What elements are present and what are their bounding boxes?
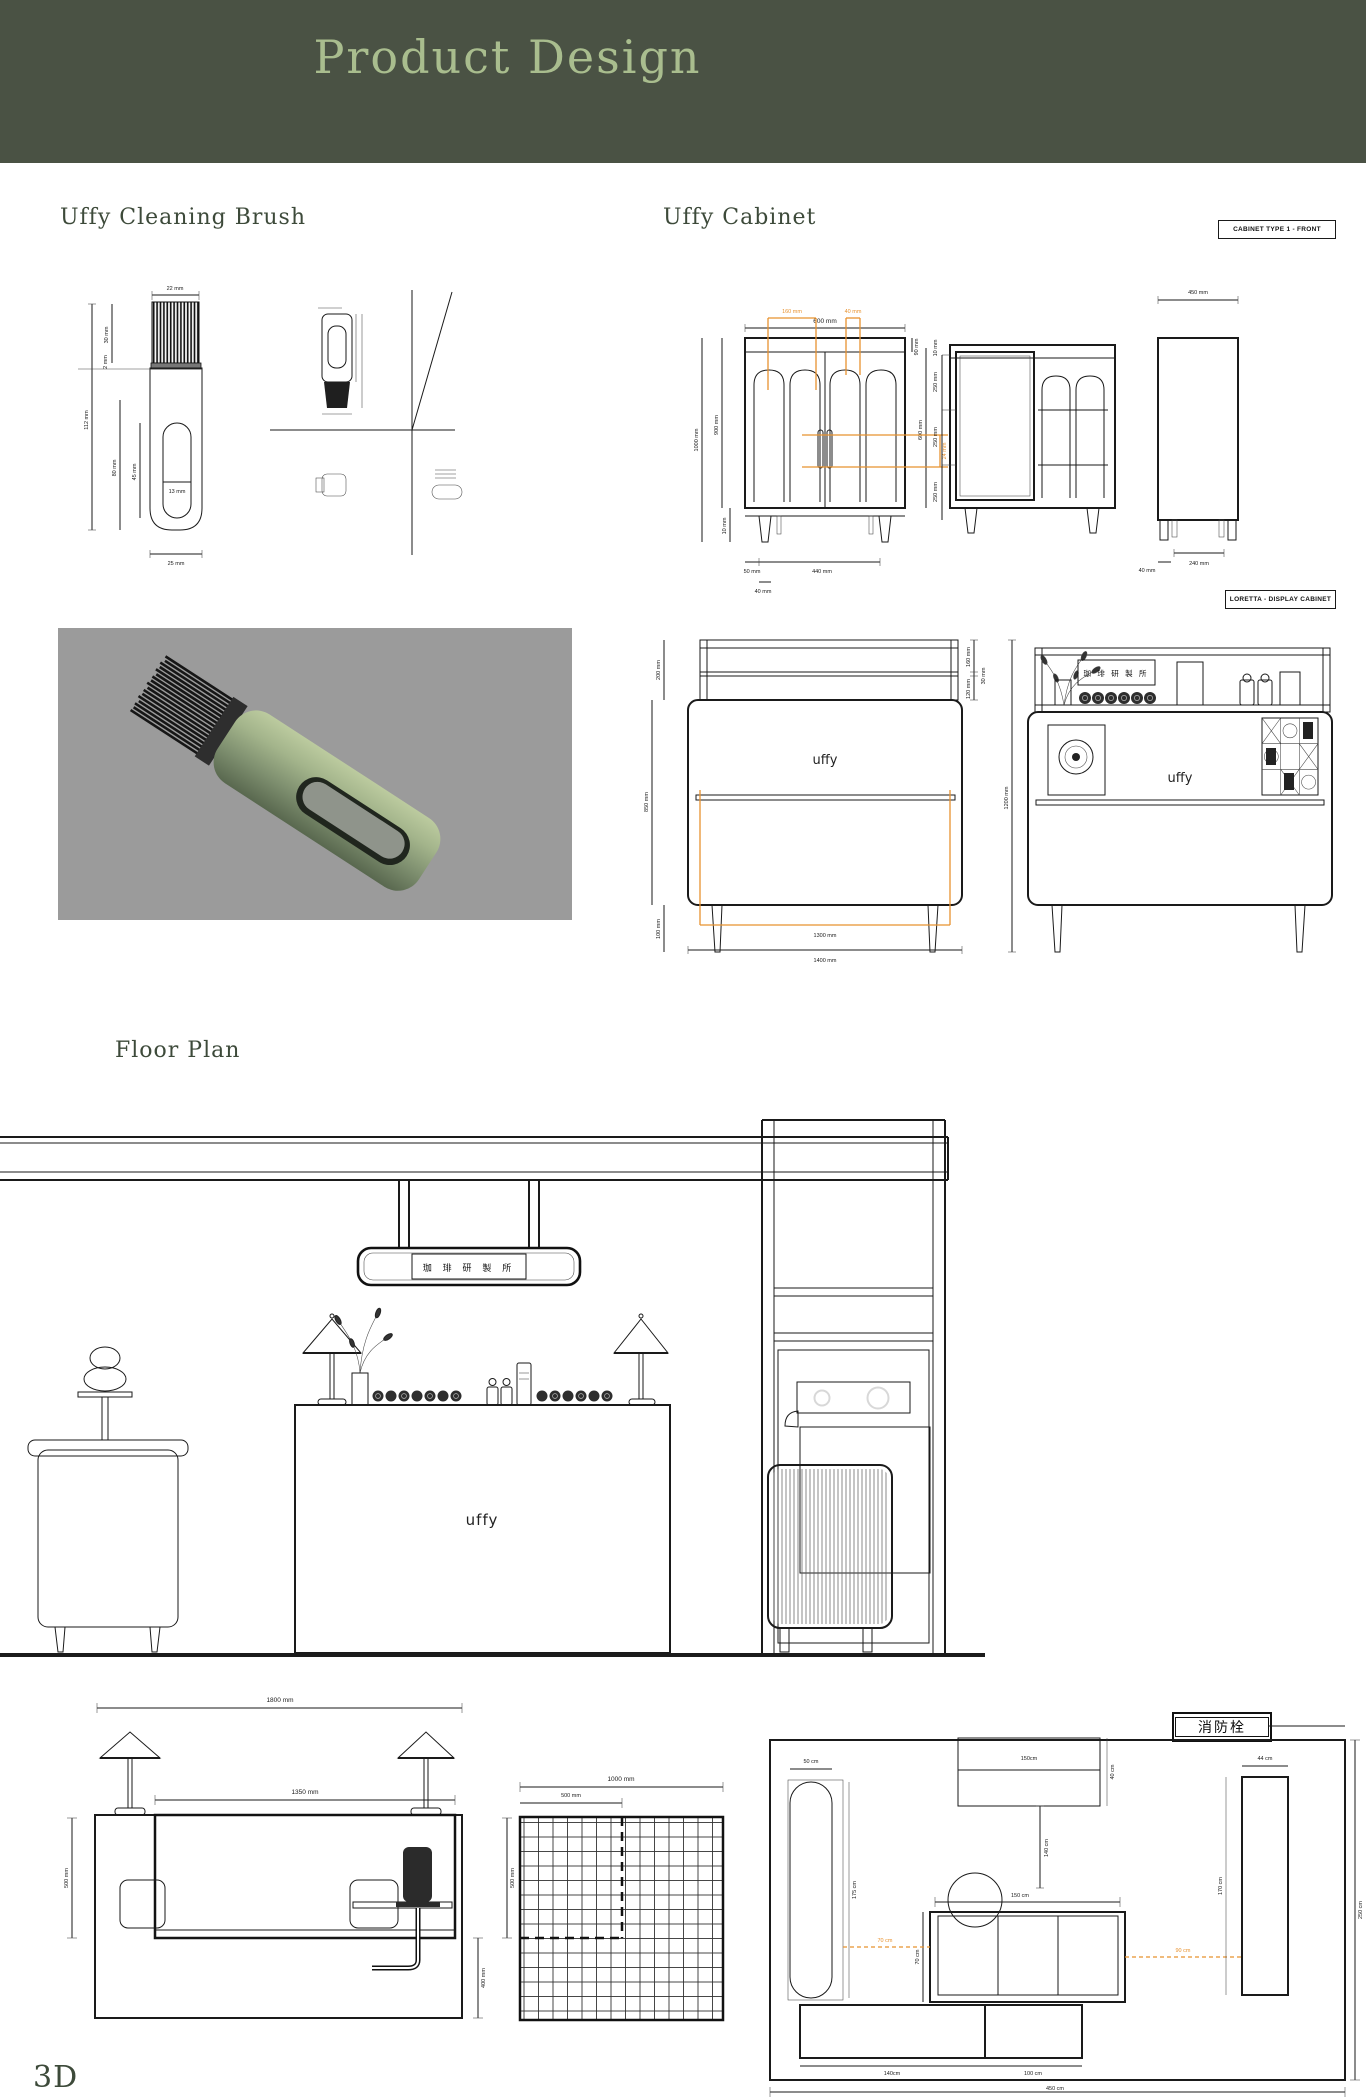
low-units: 140cm 100 cm xyxy=(800,2005,1082,2077)
dim-label: 100 mm xyxy=(656,919,662,939)
ceiling-beam xyxy=(0,1137,948,1180)
counter-plan: 150 cm 70 cm xyxy=(915,1893,1125,2002)
cabinet-section-title: Uffy Cabinet xyxy=(663,205,816,230)
dim-label: 250 mm xyxy=(933,427,939,447)
vase xyxy=(352,1373,368,1405)
tag-card xyxy=(501,1387,512,1405)
tag-card xyxy=(1240,680,1254,705)
dim-label: 44 cm xyxy=(1258,1756,1273,1762)
dim-label: 10 mm xyxy=(933,339,939,356)
dim-label: 1000 mm xyxy=(694,428,700,451)
clearance-dimensions: 70 cm 90 cm xyxy=(843,1938,1242,1957)
dim-label: 25 mm xyxy=(168,561,185,567)
dim-label: 40 mm xyxy=(845,309,862,315)
brush-section-title: Uffy Cleaning Brush xyxy=(60,205,306,230)
dim-label: 2 mm xyxy=(103,355,109,369)
bottle xyxy=(517,1363,531,1405)
counter-props xyxy=(303,1308,668,1405)
dim-label: 175 cm xyxy=(852,1881,858,1899)
dim-label: 30 mm xyxy=(981,667,987,684)
pleated-lamp xyxy=(398,1732,454,1815)
side-table xyxy=(28,1347,188,1652)
pleated-lamp xyxy=(614,1319,668,1353)
dim-label: 450 mm xyxy=(1188,290,1208,296)
dim-label: 400 mm xyxy=(481,1968,487,1988)
brand-logo: uffy xyxy=(1168,771,1193,786)
counter-opening xyxy=(350,1880,398,1928)
dim-label: 1200 mm xyxy=(1004,786,1010,809)
dim-label: 170 cm xyxy=(1218,1877,1224,1895)
counter-elevation-drawing: 1800 mm 1350 mm 500 mm 500 mm 400 mm xyxy=(55,1690,525,2035)
appliance-nook xyxy=(768,1382,930,1652)
display-cabinet-styled: 珈 琲 研 製 所 uffy xyxy=(1028,648,1332,952)
booth-elevation: 珈 琲 研 製 所 uffy xyxy=(0,1115,1000,1665)
display-card xyxy=(1177,662,1203,705)
dim-label: 10 mm xyxy=(722,517,728,534)
cabinet-side-view: 450 mm 240 mm 40 mm xyxy=(1139,290,1238,574)
tag-card xyxy=(487,1387,498,1405)
dim-label: 250 mm xyxy=(933,482,939,502)
dim-label: 160 mm xyxy=(966,647,972,667)
brush-3d-model xyxy=(58,628,572,920)
dim-label: 250 mm xyxy=(933,372,939,392)
display-cabinet-front: uffy 1300 mm 1400 mm 200 mm 850 mm 100 m… xyxy=(644,640,1016,964)
cabinet-front-view xyxy=(745,338,905,542)
dim-label: 40 mm xyxy=(755,589,772,595)
dim-label: 80 mm xyxy=(112,459,118,476)
dim-label: 1350 mm xyxy=(291,1789,318,1796)
dim-label: 240 mm xyxy=(1189,561,1209,567)
brush-side-view xyxy=(318,308,362,414)
tag-card xyxy=(1258,680,1272,705)
room-floor-plan: 50 cm 175 cm 150cm 40 cm 140 cm 150 cm 7… xyxy=(755,1700,1366,2098)
dim-label: 112 mm xyxy=(84,410,90,430)
dim-label: 1000 mm xyxy=(607,1776,634,1783)
hanging-sign: 珈 琲 研 製 所 xyxy=(358,1180,580,1285)
dim-label: 450 cm xyxy=(1046,2086,1064,2092)
dim-label: 250 cm xyxy=(1358,1901,1364,1919)
dim-label: 500 mm xyxy=(561,1793,581,1799)
tiled-counter xyxy=(95,1815,462,2018)
dim-label: 70 cm xyxy=(915,1949,921,1964)
dim-label: 1400 mm xyxy=(814,958,837,964)
dim-label: 1800 mm xyxy=(266,1697,293,1704)
dim-label: 600 mm xyxy=(813,318,836,325)
brush-front-view xyxy=(150,302,202,530)
brand-logo: uffy xyxy=(466,1511,499,1529)
dim-label: 90 cm xyxy=(1176,1948,1191,1954)
room-outline xyxy=(770,1740,1345,2080)
dim-label: 30 mm xyxy=(104,326,110,343)
dim-label: 24 mm xyxy=(942,442,948,459)
dim-label: 150 cm xyxy=(1011,1893,1029,1899)
dim-label: 13 mm xyxy=(169,489,186,495)
dim-label: 440 mm xyxy=(812,569,832,575)
dim-label: 160 mm xyxy=(782,309,802,315)
tile-panel xyxy=(1262,718,1318,795)
tall-unit: 44 cm 170 cm xyxy=(1218,1756,1288,1995)
brand-logo: uffy xyxy=(813,753,838,768)
hanging-sign-text: 珈 琲 研 製 所 xyxy=(423,1262,515,1274)
dim-label: 600 mm xyxy=(918,420,924,440)
jar-row xyxy=(537,1391,613,1402)
page-title: Product Design xyxy=(0,30,1015,84)
tile-grid-plan: 1000 mm 500 mm xyxy=(495,1750,740,2035)
brush-axes-sketch xyxy=(270,290,462,555)
dim-label: 150cm xyxy=(1021,1756,1038,1762)
plant-sprig xyxy=(334,1308,394,1373)
dim-label: 45 mm xyxy=(132,463,138,480)
floor-plan-section-title: Floor Plan xyxy=(115,1038,240,1063)
pleated-lamp xyxy=(303,1319,361,1353)
cabinet-type-label: CABINET TYPE 1 - FRONT xyxy=(1218,220,1336,239)
dim-label: 40 mm xyxy=(1139,568,1156,574)
dim-label: 140cm xyxy=(884,2071,901,2077)
display-cabinet-drawings: uffy 1300 mm 1400 mm 200 mm 850 mm 100 m… xyxy=(640,620,1366,980)
dim-label: 900 mm xyxy=(714,415,720,435)
dim-label: 850 mm xyxy=(644,792,650,812)
brush-3d-render xyxy=(58,628,572,920)
round-table xyxy=(948,1873,1002,1927)
cabinet-open-view: 10 mm 250 mm 250 mm 250 mm xyxy=(933,339,1115,533)
dim-label: 140 cm xyxy=(1044,1839,1050,1857)
dim-label: 100 cm xyxy=(1024,2071,1042,2077)
desk-and-chair xyxy=(353,1847,452,1968)
dim-label: 1300 mm xyxy=(814,933,837,939)
main-counter: uffy xyxy=(295,1405,670,1653)
dim-label: 120 mm xyxy=(966,679,972,699)
dim-label: 500 mm xyxy=(64,1868,70,1888)
dim-label: 200 mm xyxy=(656,660,662,680)
cabinet-technical-drawings: 600 mm 160 mm 40 mm 1000 mm 900 mm 90 mm… xyxy=(650,240,1366,610)
header-banner: Product Design xyxy=(0,0,1366,163)
dim-label: 70 cm xyxy=(878,1938,893,1944)
jar-row xyxy=(373,1391,462,1402)
flute-box xyxy=(1280,672,1300,705)
wall-unit: 150cm 40 cm 140 cm xyxy=(958,1738,1116,1888)
capsule-display: 50 cm 175 cm xyxy=(788,1759,858,2000)
counter-opening xyxy=(120,1880,165,1928)
cabinet-sign-text: 珈 琲 研 製 所 xyxy=(1083,668,1148,678)
dim-label: 22 mm xyxy=(167,286,184,292)
dim-label: 50 cm xyxy=(804,1759,819,1765)
dim-label: 50 mm xyxy=(744,569,761,575)
jar-row xyxy=(1079,692,1156,704)
pleated-lamp xyxy=(100,1732,160,1815)
floor-line xyxy=(0,1653,985,1657)
footer-section-title: 3D xyxy=(33,2060,78,2095)
dim-label: 40 cm xyxy=(1110,1764,1116,1779)
brush-technical-drawing: 22 mm 112 mm 30 mm 2 mm 80 mm 45 mm 13 m… xyxy=(50,250,470,580)
dim-label: 90 mm xyxy=(914,338,920,355)
